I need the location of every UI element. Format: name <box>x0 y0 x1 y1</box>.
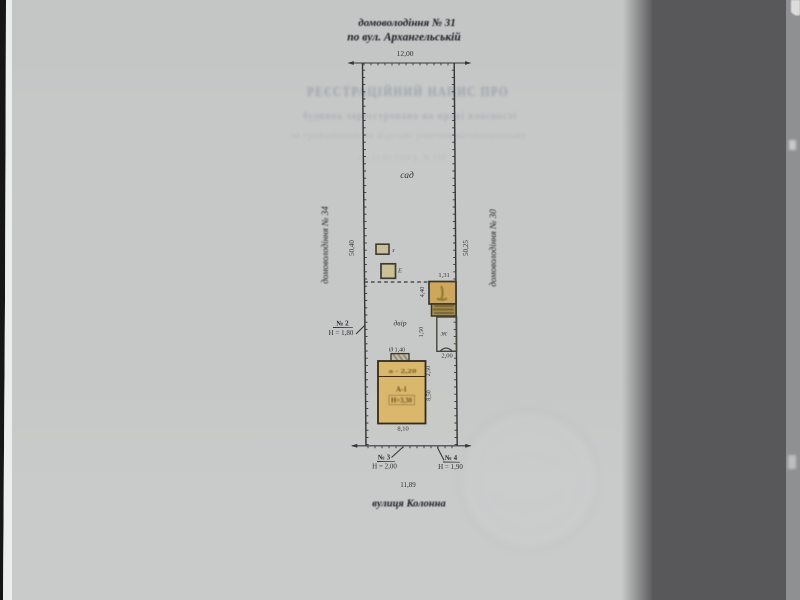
svg-text:8,10: 8,10 <box>397 426 408 433</box>
svg-text:а - 2,20: а - 2,20 <box>389 369 417 375</box>
svg-text:Н = 1,80: Н = 1,80 <box>329 329 354 337</box>
svg-text:будинок зареєстровано на праві: будинок зареєстровано на праві власності <box>303 111 517 122</box>
svg-text:вулиця Колонна: вулиця Колонна <box>372 499 445 510</box>
svg-text:50,25: 50,25 <box>462 240 470 256</box>
svg-text:домоволодіння № 31: домоволодіння № 31 <box>358 17 456 29</box>
svg-text:з: з <box>391 247 395 254</box>
svg-text:4,40: 4,40 <box>420 287 426 298</box>
svg-text:домоволодіння № 34: домоволодіння № 34 <box>320 206 330 284</box>
svg-text:двір: двір <box>393 319 406 328</box>
svg-text:11,89: 11,89 <box>400 481 416 489</box>
svg-text:№ 4: № 4 <box>444 454 458 462</box>
svg-text:по вул. Архангельській: по вул. Архангельській <box>347 31 461 44</box>
svg-text:8,50: 8,50 <box>427 390 433 401</box>
svg-text:домоволодіння № 30: домоволодіння № 30 <box>488 209 498 287</box>
svg-text:1,31: 1,31 <box>438 272 449 279</box>
svg-text:50,40: 50,40 <box>348 240 356 256</box>
svg-text:2,50: 2,50 <box>426 366 432 377</box>
svg-text:РЕЄСТРАЦІЙНИЙ НАПИС ПРО: РЕЄСТРАЦІЙНИЙ НАПИС ПРО <box>307 84 509 99</box>
svg-text:Н = 1,90: Н = 1,90 <box>438 463 463 471</box>
svg-text:сад: сад <box>400 170 414 181</box>
svg-text:А-1: А-1 <box>396 386 407 394</box>
svg-text:Ø 1,40: Ø 1,40 <box>389 348 405 354</box>
svg-text:№ 3: № 3 <box>377 454 391 462</box>
svg-text:1,50: 1,50 <box>419 327 425 338</box>
svg-text:12,00: 12,00 <box>397 49 414 58</box>
svg-text:Е: Е <box>397 268 402 275</box>
svg-text:Н=3,30: Н=3,30 <box>391 398 413 405</box>
svg-text:Н = 2,00: Н = 2,00 <box>372 463 397 471</box>
svg-text:ж: ж <box>441 329 448 338</box>
svg-text:від 12.05.1954 р. № 218: від 12.05.1954 р. № 218 <box>358 152 446 162</box>
svg-text:за громадянкою на підставі ріш: за громадянкою на підставі рішення міськ… <box>292 130 527 140</box>
svg-text:№ 2: № 2 <box>335 320 349 328</box>
svg-text:2,00: 2,00 <box>441 353 452 360</box>
